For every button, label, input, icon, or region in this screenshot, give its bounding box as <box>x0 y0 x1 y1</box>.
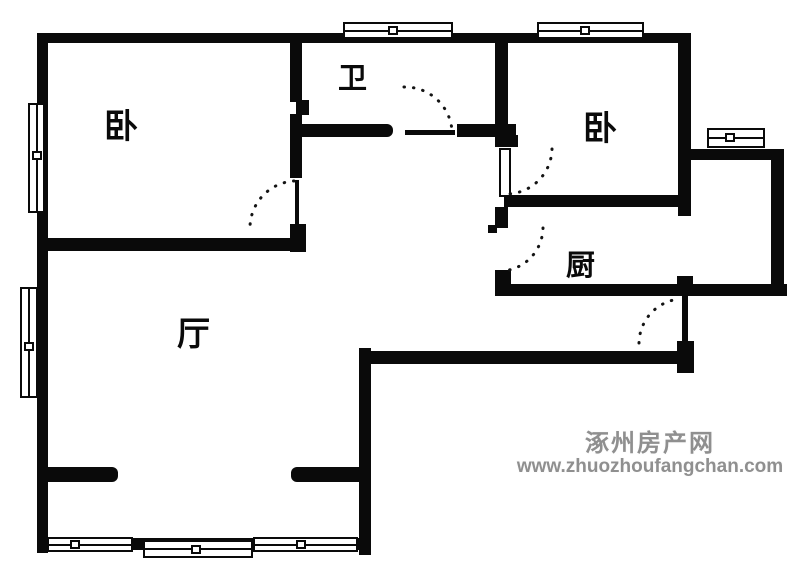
wall-divider-corner-block <box>495 135 518 147</box>
floor-plan: 卧 卫 卧 厨 厅 涿州房产网 www.zhuozhoufangchan.com <box>0 0 800 576</box>
window-latch-box <box>32 151 42 160</box>
window-nook-top <box>707 128 765 148</box>
window-midline <box>539 30 642 32</box>
wall-bathroom-bedroom2-divider <box>495 33 508 147</box>
window-latch-box <box>191 545 201 554</box>
room-label-bedroom-left: 卧 <box>104 110 138 144</box>
window-latch-box <box>70 540 80 549</box>
window-latch-box <box>580 26 590 35</box>
wall-entry-hinge-cap <box>677 341 694 373</box>
room-label-living: 厅 <box>177 317 210 350</box>
wall-bedroom2-right <box>678 33 691 216</box>
room-label-bathroom: 卫 <box>338 64 367 93</box>
window-top-bedroom2 <box>537 22 644 39</box>
window-midline <box>49 544 131 546</box>
bathroom-door-leaf <box>405 130 455 135</box>
window-left-bedroom1 <box>28 103 45 213</box>
window-latch-box <box>296 540 306 549</box>
kitchen-door-arc <box>503 228 543 271</box>
entry-door-arc <box>639 299 679 343</box>
wall-entry-stub-above <box>677 276 693 285</box>
wall-bathroom-bottom-left <box>296 124 393 137</box>
bedroom1-door-arc <box>250 181 294 227</box>
window-bottom-left <box>47 537 133 552</box>
bedroom2-door-arc <box>507 149 552 194</box>
watermark-site-name: 涿州房产网 <box>500 432 800 456</box>
wall-right-lower-vertical <box>359 348 371 555</box>
bedroom1-door-leaf <box>295 180 299 227</box>
wall-bedroom1-notch <box>290 102 296 114</box>
watermark-site-url: www.zhuozhoufangchan.com <box>500 456 800 478</box>
window-latch-box <box>725 133 735 142</box>
window-latch-box <box>24 342 34 351</box>
wall-nook-top <box>690 149 783 160</box>
watermark: 涿州房产网 www.zhuozhoufangchan.com <box>500 432 800 478</box>
entry-door-leaf <box>682 296 688 342</box>
wall-kitchen-bottom <box>495 284 787 296</box>
window-midline <box>709 137 763 139</box>
wall-kitchen-left-lower-corner <box>495 270 511 285</box>
window-latch-box <box>388 26 398 35</box>
wall-living-right-horizontal <box>360 351 693 364</box>
window-left-living <box>20 287 38 398</box>
wall-bedroom1-bottom <box>37 238 304 251</box>
wall-far-right-exterior <box>771 149 784 296</box>
room-label-bedroom-right: 卧 <box>583 112 617 146</box>
window-bottom-middle-bay <box>143 540 253 558</box>
window-top-bathroom <box>343 22 453 39</box>
wall-bedroom2-bottom <box>504 195 691 207</box>
window-bottom-right <box>253 537 358 552</box>
wall-kitchen-doorframe-tick <box>488 225 497 233</box>
wall-bathroom-shaft-stub <box>302 100 309 115</box>
room-label-kitchen: 厨 <box>566 251 595 280</box>
wall-living-partition-left-stub <box>37 467 118 482</box>
bathroom-door-arc <box>404 87 452 131</box>
window-midline <box>345 30 451 32</box>
bedroom2-door-leaf <box>499 148 511 197</box>
wall-living-partition-right-stub <box>291 467 371 482</box>
